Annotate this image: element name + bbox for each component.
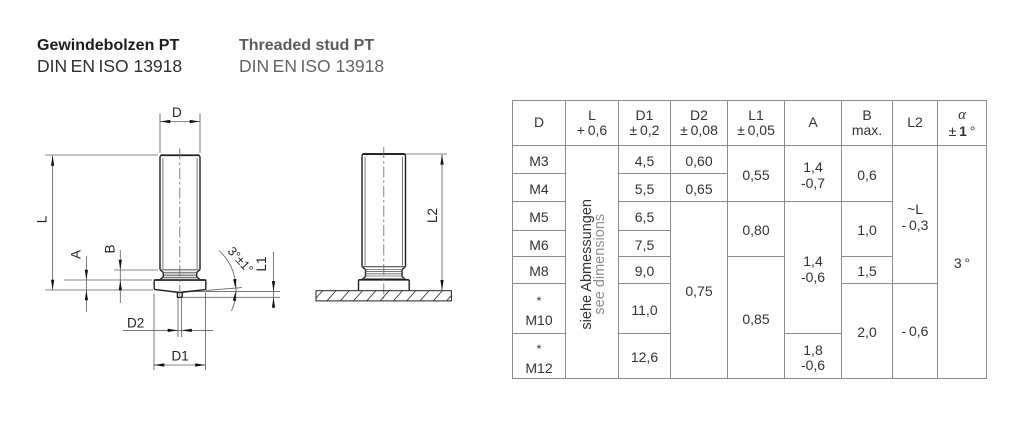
svg-text:L1: L1: [254, 256, 269, 271]
svg-text:A: A: [69, 250, 84, 259]
svg-text:D2: D2: [127, 316, 144, 331]
svg-text:D: D: [172, 105, 182, 120]
svg-text:L: L: [35, 215, 50, 223]
svg-text:L2: L2: [425, 208, 440, 223]
svg-text:3°±1°: 3°±1°: [225, 244, 256, 276]
svg-text:B: B: [103, 244, 118, 253]
svg-text:D1: D1: [172, 349, 189, 364]
